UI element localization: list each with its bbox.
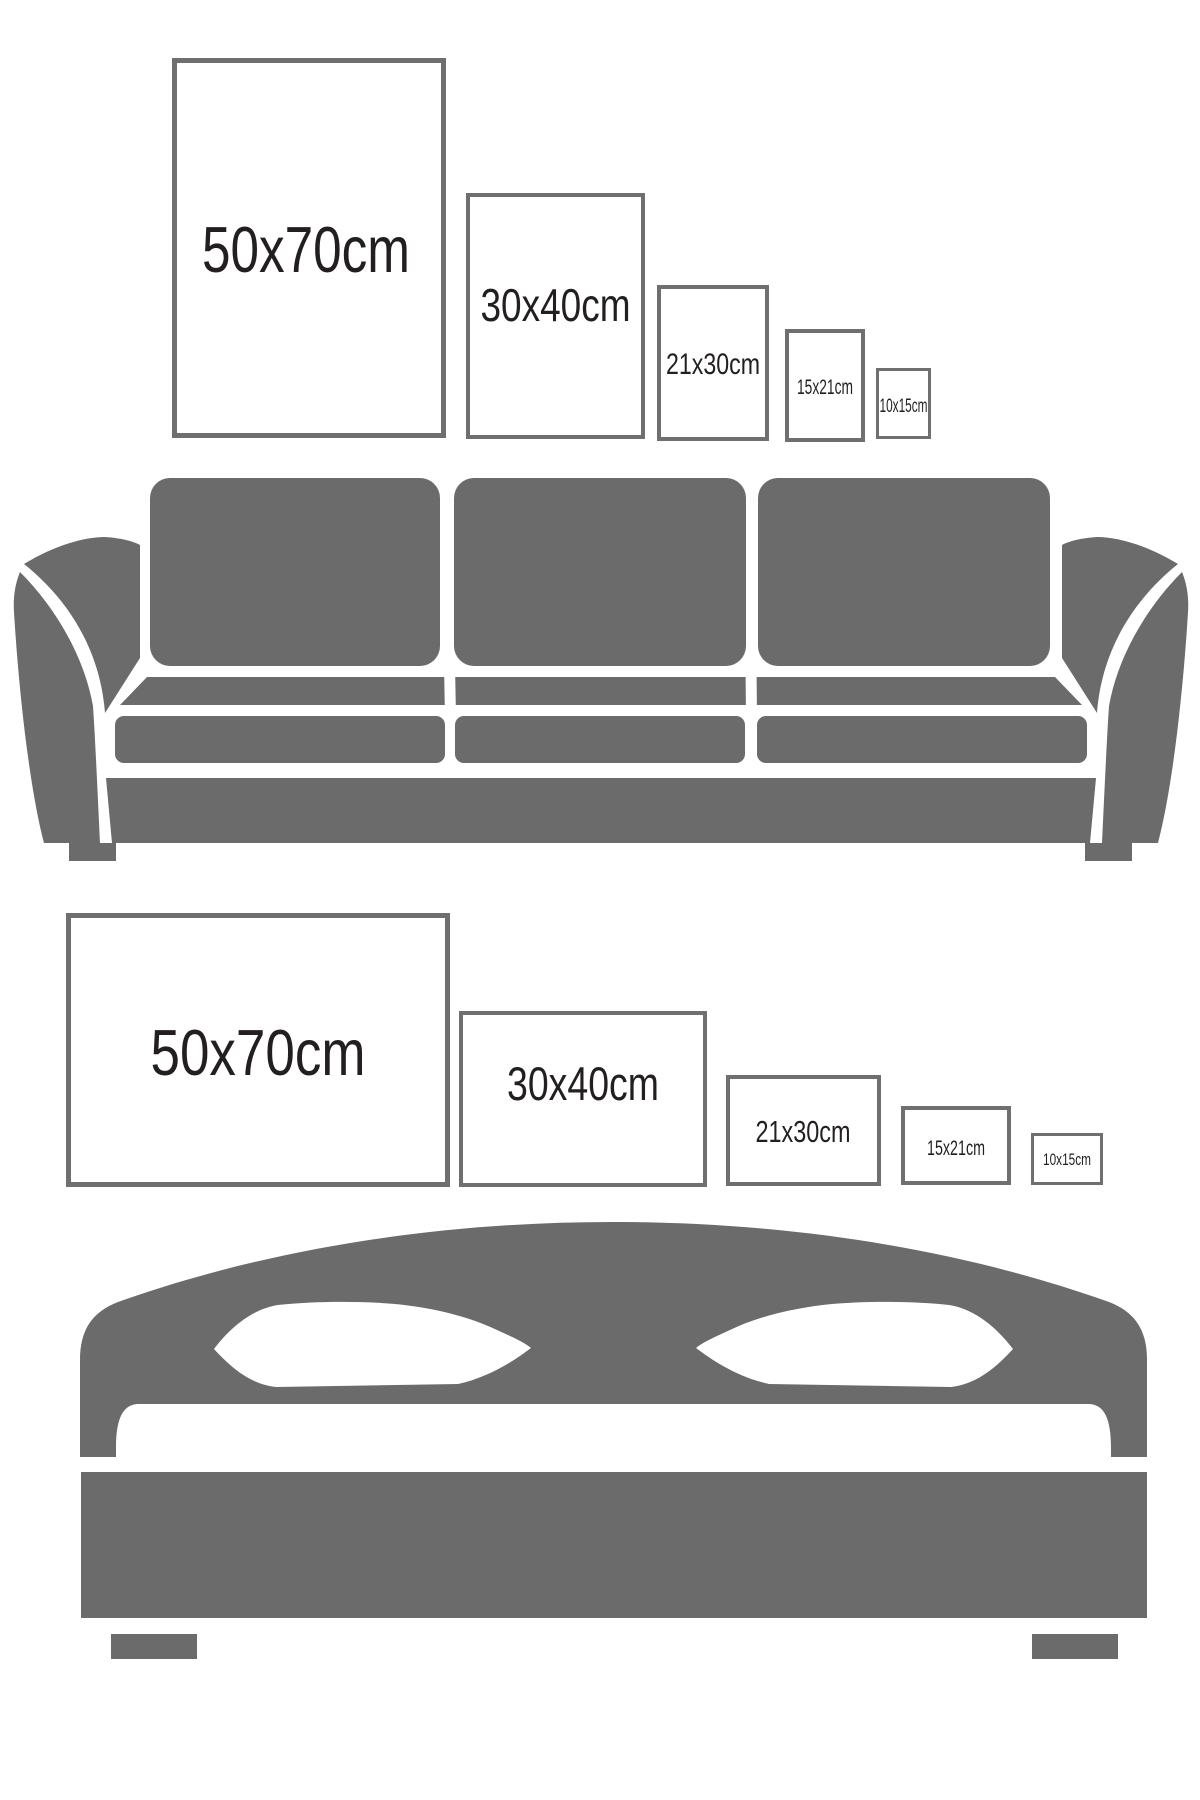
svg-text:50x70cm: 50x70cm <box>202 213 410 286</box>
svg-text:10x15cm: 10x15cm <box>1043 1150 1091 1169</box>
svg-text:50x70cm: 50x70cm <box>151 1016 366 1089</box>
svg-text:15x21cm: 15x21cm <box>927 1137 985 1160</box>
svg-text:30x40cm: 30x40cm <box>507 1057 659 1110</box>
svg-text:15x21cm: 15x21cm <box>797 376 853 399</box>
svg-text:30x40cm: 30x40cm <box>481 279 631 331</box>
svg-text:10x15cm: 10x15cm <box>880 396 928 417</box>
svg-text:21x30cm: 21x30cm <box>756 1114 851 1149</box>
svg-text:21x30cm: 21x30cm <box>666 348 760 381</box>
